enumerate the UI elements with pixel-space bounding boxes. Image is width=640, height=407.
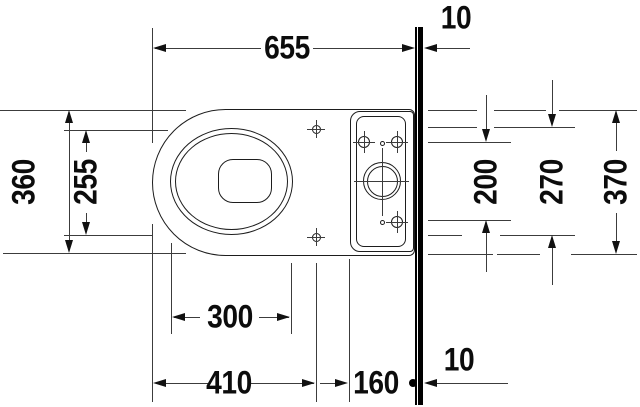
reference-line <box>428 235 462 236</box>
arrowhead-right <box>335 379 348 387</box>
arrowhead-down <box>612 241 620 254</box>
arrowhead-up <box>548 235 556 248</box>
reference-line <box>428 142 511 143</box>
dim-label-255: 255 <box>68 159 105 205</box>
extension-line <box>152 224 153 402</box>
dim-label-410: 410 <box>206 365 252 402</box>
small-pilot-hole-bottom <box>380 220 385 225</box>
small-pilot-hole-top <box>380 141 385 146</box>
crosshair-line <box>397 211 398 233</box>
dimension-line <box>616 123 617 151</box>
dimension-line <box>486 95 487 130</box>
dim-label-200: 200 <box>468 159 505 205</box>
dimension-line <box>552 80 553 115</box>
dim-label-10-bottom: 10 <box>444 342 474 379</box>
dim-label-160: 160 <box>353 365 399 402</box>
reference-line <box>0 110 186 111</box>
dimension-line <box>437 48 470 49</box>
crosshair-line <box>316 228 317 246</box>
arrowhead-down <box>82 222 90 235</box>
reference-line <box>428 254 493 255</box>
arrowhead-up <box>482 220 490 233</box>
crosshair-line <box>397 131 398 153</box>
reference-line <box>497 254 540 255</box>
reference-line <box>64 130 168 131</box>
arrowhead-right <box>302 379 315 387</box>
water-surface-outline <box>218 159 272 203</box>
arrowhead-up <box>82 130 90 143</box>
wall-line-thin <box>415 27 417 405</box>
dim-label-360: 360 <box>6 159 43 205</box>
reference-line <box>3 253 186 254</box>
dim-label-370: 370 <box>598 159 635 205</box>
wall-contact-dot <box>409 379 417 387</box>
reference-line <box>500 235 575 236</box>
reference-line <box>428 127 477 128</box>
dimension-line <box>616 213 617 241</box>
reference-line <box>559 110 637 111</box>
arrowhead-down <box>482 129 490 142</box>
reference-line <box>428 110 477 111</box>
arrowhead-down <box>65 240 73 253</box>
arrowhead-down <box>548 114 556 127</box>
arrowhead-right <box>277 313 290 321</box>
extension-line <box>316 263 317 402</box>
reference-line <box>494 127 575 128</box>
arrowhead-left <box>153 44 166 52</box>
dim-label-655: 655 <box>264 30 310 67</box>
crosshair-line <box>316 120 317 138</box>
arrowhead-left <box>153 379 166 387</box>
dimension-line <box>313 48 412 49</box>
dim-label-300: 300 <box>207 299 253 336</box>
arrowhead-left <box>172 313 185 321</box>
dimension-line <box>155 48 261 49</box>
dim-label-10-top: 10 <box>441 0 471 37</box>
wall-line-thick <box>418 27 423 405</box>
arrowhead-left <box>424 379 437 387</box>
arrowhead-right <box>402 44 415 52</box>
dimension-line <box>486 233 487 272</box>
arrowhead-up <box>65 110 73 123</box>
reference-line <box>571 254 637 255</box>
reference-line <box>428 220 511 221</box>
crosshair-line <box>364 131 365 153</box>
reference-line <box>64 235 152 236</box>
technical-drawing-canvas: 655 10 360 255 300 410 160 10 <box>0 0 640 407</box>
crosshair-line <box>382 148 383 216</box>
dimension-line <box>320 383 336 384</box>
extension-line <box>349 259 350 402</box>
arrowhead-left <box>424 44 437 52</box>
reference-line <box>494 110 546 111</box>
dimension-line <box>437 383 508 384</box>
extension-line <box>291 263 292 334</box>
dimension-line <box>552 248 553 285</box>
arrowhead-up <box>612 110 620 123</box>
dim-label-270: 270 <box>534 159 571 205</box>
